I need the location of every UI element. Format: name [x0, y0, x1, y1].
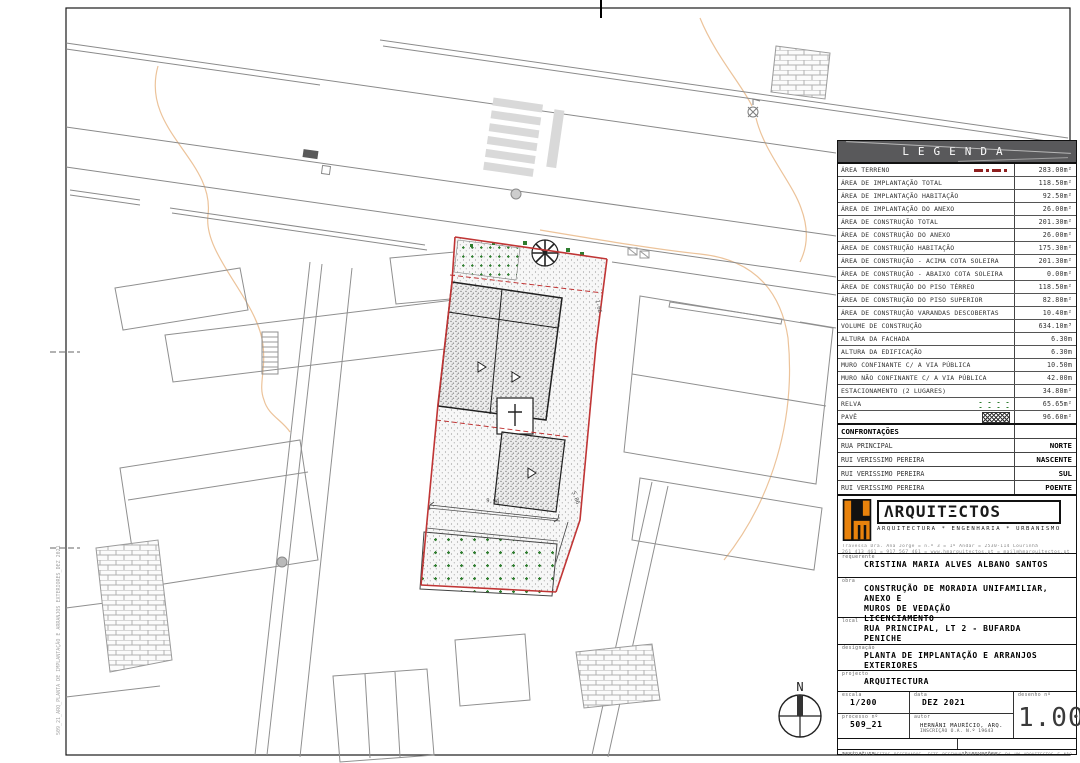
drawing-sheet: 509_21_ARQ_PLANTA DE IMPLANTAÇÃO E ARRAN…	[0, 0, 1080, 763]
disclaimer-text: TODOS OS DIREITOS RESERVADOS. ESTE DESEN…	[838, 750, 1076, 754]
legend-row-label: ÁREA DE IMPLANTAÇÃO HABITAÇÃO	[838, 192, 1014, 200]
legend-row: ÁREA DE CONSTRUÇÃO - ACIMA COTA SOLEIRA2…	[838, 255, 1076, 268]
legend-row-value: 6.30m	[1014, 346, 1076, 358]
legend-row-value: 82.80m²	[1014, 294, 1076, 306]
legend-row: ALTURA DA FACHADA6.30m	[838, 333, 1076, 346]
legend-row-label: ÁREA DE IMPLANTAÇÃO DO ANEXO	[838, 205, 1014, 213]
svg-text:N: N	[796, 680, 803, 694]
confrontacoes-orientation: NORTE	[1014, 439, 1076, 452]
legend-row-value: 118.50m²	[1014, 281, 1076, 293]
legend-row: ÁREA DE CONSTRUÇÃO - ABAIXO COTA SOLEIRA…	[838, 268, 1076, 281]
legend-row-value: 34.80m²	[1014, 385, 1076, 397]
legend-row-value: 42.00m	[1014, 372, 1076, 384]
local-line: PENICHE	[842, 634, 1072, 644]
confrontacoes-label: RUA PRINCIPAL	[838, 442, 1014, 450]
legend-row-label: ÁREA DE CONSTRUÇÃO HABITAÇÃO	[838, 244, 1014, 252]
designacao-block: designação PLANTA DE IMPLANTAÇÃO E ARRAN…	[838, 645, 1076, 671]
legend-row-label: ÁREA DE CONSTRUÇÃO DO PISO TÉRREO	[838, 283, 1014, 291]
legend-row: ÁREA DE IMPLANTAÇÃO TOTAL118.50m²	[838, 177, 1076, 190]
legend-row-label: ÁREA DE CONSTRUÇÃO VARANDAS DESCOBERTAS	[838, 309, 1014, 317]
legend-row-value: 634.10m³	[1014, 320, 1076, 332]
desenho-number: 1.00	[1018, 698, 1080, 738]
local-line: RUA PRINCIPAL, LT 2 - BUFARDA	[842, 624, 1072, 634]
confrontacoes-orientation: POENTE	[1014, 481, 1076, 494]
legend-row-label: RELVA	[838, 400, 1014, 409]
legend-row-label: ÁREA DE IMPLANTAÇÃO TOTAL	[838, 179, 1014, 187]
data-cell: data DEZ 2021	[910, 692, 1014, 714]
legend-row-label: MURO NÃO CONFINANTE C/ A VIA PÚBLICA	[838, 374, 1014, 382]
legend-row-label: ALTURA DA EDIFICAÇÃO	[838, 348, 1014, 356]
confrontacoes-header: CONFRONTAÇÕES	[838, 425, 1076, 439]
legend-row-value: 26.00m²	[1014, 229, 1076, 241]
escala-cell: escala 1/200	[838, 692, 910, 714]
legend-row: PAVÊ96.60m²	[838, 411, 1076, 423]
legend-row: ÁREA DE IMPLANTAÇÃO DO ANEXO26.00m²	[838, 203, 1076, 216]
red-dash-symbol	[974, 169, 1010, 172]
legend-row-label: ÁREA DE CONSTRUÇÃO TOTAL	[838, 218, 1014, 226]
legend-row-value: 201.30m²	[1014, 216, 1076, 228]
processo-value: 509_21	[842, 720, 905, 730]
data-value: DEZ 2021	[914, 698, 1009, 708]
confrontacoes-table: CONFRONTAÇÕESRUA PRINCIPALNORTERUI VERIS…	[838, 425, 1076, 496]
legend-row-value: 96.60m²	[1014, 411, 1076, 423]
autor-cell: autor HERNÂNI MAURÍCIO, ARQ. INSCRIÇÃO O…	[910, 714, 1014, 738]
legend-header: LEGENDA	[838, 141, 1076, 164]
escala-value: 1/200	[842, 698, 905, 708]
tree-symbol	[532, 240, 558, 266]
legend-row: VOLUME DE CONSTRUÇÃO634.10m³	[838, 320, 1076, 333]
legend-row: ÁREA DE CONSTRUÇÃO DO PISO TÉRREO118.50m…	[838, 281, 1076, 294]
legend-row: ESTACIONAMENTO (2 LUGARES)34.80m²	[838, 385, 1076, 398]
confrontacoes-row: RUA PRINCIPALNORTE	[838, 439, 1076, 453]
legend-row-label: ÁREA DE CONSTRUÇÃO DO PISO SUPERIOR	[838, 296, 1014, 304]
north-compass-icon: N	[779, 680, 821, 737]
legend-row-value: 10.50m	[1014, 359, 1076, 371]
firm-logo-block: ΛRQUITΞCTOS ARQUITECTURA * ENGENHARIA * …	[838, 496, 1076, 554]
legend-row-label: PAVÊ	[838, 412, 1014, 423]
confrontacoes-label: RUI VERISSIMO PEREIRA	[838, 470, 1014, 478]
legend-row: RELVA65.65m²	[838, 398, 1076, 411]
legend-row-label: ÁREA DE CONSTRUÇÃO - ABAIXO COTA SOLEIRA	[838, 270, 1014, 278]
legend-row-value: 10.40m²	[1014, 307, 1076, 319]
legend-row: ÁREA DE IMPLANTAÇÃO HABITAÇÃO92.50m²	[838, 190, 1076, 203]
meta-grid: escala 1/200 data DEZ 2021 desenho nº 1.…	[838, 692, 1076, 739]
legend-row: MURO CONFINANTE C/ A VIA PÚBLICA10.50m	[838, 359, 1076, 372]
legend-row: ÁREA DE CONSTRUÇÃO VARANDAS DESCOBERTAS1…	[838, 307, 1076, 320]
legend-row: ÁREA DE CONSTRUÇÃO DO PISO SUPERIOR82.80…	[838, 294, 1076, 307]
legend-row-label: VOLUME DE CONSTRUÇÃO	[838, 322, 1014, 330]
logo-wordmark: ΛRQUITΞCTOS	[877, 500, 1061, 524]
legend-row: ÁREA DE CONSTRUÇÃO TOTAL201.30m²	[838, 216, 1076, 229]
logo-tagline: ARQUITECTURA * ENGENHARIA * URBANISMO	[877, 526, 1061, 532]
obra-line: CONSTRUÇÃO DE MORADIA UNIFAMILIAR, ANEXO…	[842, 584, 1072, 604]
legend-row-value: 0.00m²	[1014, 268, 1076, 280]
legend-row-value: 6.30m	[1014, 333, 1076, 345]
obra-line: MUROS DE VEDAÇÃO	[842, 604, 1072, 614]
legend-row-label: ÁREA TERRENO	[838, 166, 1014, 174]
legend-row: ÁREA DE CONSTRUÇÃO DO ANEXO26.00m²	[838, 229, 1076, 242]
local-block: local RUA PRINCIPAL, LT 2 - BUFARDA PENI…	[838, 618, 1076, 645]
legend-row-value: 92.50m²	[1014, 190, 1076, 202]
requerente-block: requerente CRISTINA MARIA ALVES ALBANO S…	[838, 554, 1076, 577]
confrontacoes-label: RUI VERISSIMO PEREIRA	[838, 484, 1014, 492]
lot: 9.90 5.86 1.66	[420, 237, 607, 596]
legend-row-value: 26.00m²	[1014, 203, 1076, 215]
legend-row-label: ÁREA DE CONSTRUÇÃO - ACIMA COTA SOLEIRA	[838, 257, 1014, 265]
legend-row-label: ALTURA DA FACHADA	[838, 335, 1014, 343]
projecto-value: ARQUITECTURA	[842, 677, 1072, 687]
confrontacoes-row: RUI VERISSIMO PEREIRAPOENTE	[838, 481, 1076, 494]
title-block-column: LEGENDA ÁREA TERRENO283.00m²ÁREA DE IMPL…	[837, 140, 1077, 755]
processo-cell: processo nº 509_21	[838, 714, 910, 738]
legend-row-label: MURO CONFINANTE C/ A VIA PÚBLICA	[838, 361, 1014, 369]
autor-registration: INSCRIÇÃO O.A. N.º 19643	[914, 729, 1009, 734]
legend-row-value: 175.30m²	[1014, 242, 1076, 254]
legend-row: ÁREA DE CONSTRUÇÃO HABITAÇÃO175.30m²	[838, 242, 1076, 255]
legend-row: MURO NÃO CONFINANTE C/ A VIA PÚBLICA42.0…	[838, 372, 1076, 385]
file-path-text: 509_21_ARQ_PLANTA DE IMPLANTAÇÃO E ARRAN…	[55, 545, 62, 735]
confrontacoes-row: RUI VERISSIMO PEREIRASUL	[838, 467, 1076, 481]
manhole-icon	[511, 189, 521, 199]
desenho-cell: desenho nº 1.00	[1014, 692, 1080, 738]
confrontacoes-row: RUI VERISSIMO PEREIRANASCENTE	[838, 453, 1076, 467]
signature-row: assinatura observações	[838, 739, 1076, 750]
legend-table: ÁREA TERRENO283.00m²ÁREA DE IMPLANTAÇÃO …	[838, 164, 1076, 425]
legend-row-label: ESTACIONAMENTO (2 LUGARES)	[838, 387, 1014, 395]
legend-row-value: 65.65m²	[1014, 398, 1076, 410]
stairs-symbol	[262, 332, 278, 374]
crosswalk	[483, 97, 565, 180]
confrontacoes-label: RUI VERISSIMO PEREIRA	[838, 456, 1014, 464]
projecto-block: projecto ARQUITECTURA	[838, 671, 1076, 692]
pave-symbol	[982, 412, 1010, 423]
legend-row: ALTURA DA EDIFICAÇÃO6.30m	[838, 346, 1076, 359]
designacao-value: PLANTA DE IMPLANTAÇÃO E ARRANJOS EXTERIO…	[842, 651, 1072, 671]
requerente-value: CRISTINA MARIA ALVES ALBANO SANTOS	[842, 560, 1072, 570]
confrontacoes-orientation: SUL	[1014, 467, 1076, 480]
obra-block: obra CONSTRUÇÃO DE MORADIA UNIFAMILIAR, …	[838, 578, 1076, 618]
legend-row-value: 283.00m²	[1014, 164, 1076, 176]
legend-row-value: 201.30m²	[1014, 255, 1076, 267]
legend-row-label: ÁREA DE CONSTRUÇÃO DO ANEXO	[838, 231, 1014, 239]
legend-row: ÁREA TERRENO283.00m²	[838, 164, 1076, 177]
hm-logo-icon	[842, 499, 872, 541]
grass-symbol	[976, 400, 1010, 409]
confrontacoes-orientation: NASCENTE	[1014, 453, 1076, 466]
legend-row-value: 118.50m²	[1014, 177, 1076, 189]
